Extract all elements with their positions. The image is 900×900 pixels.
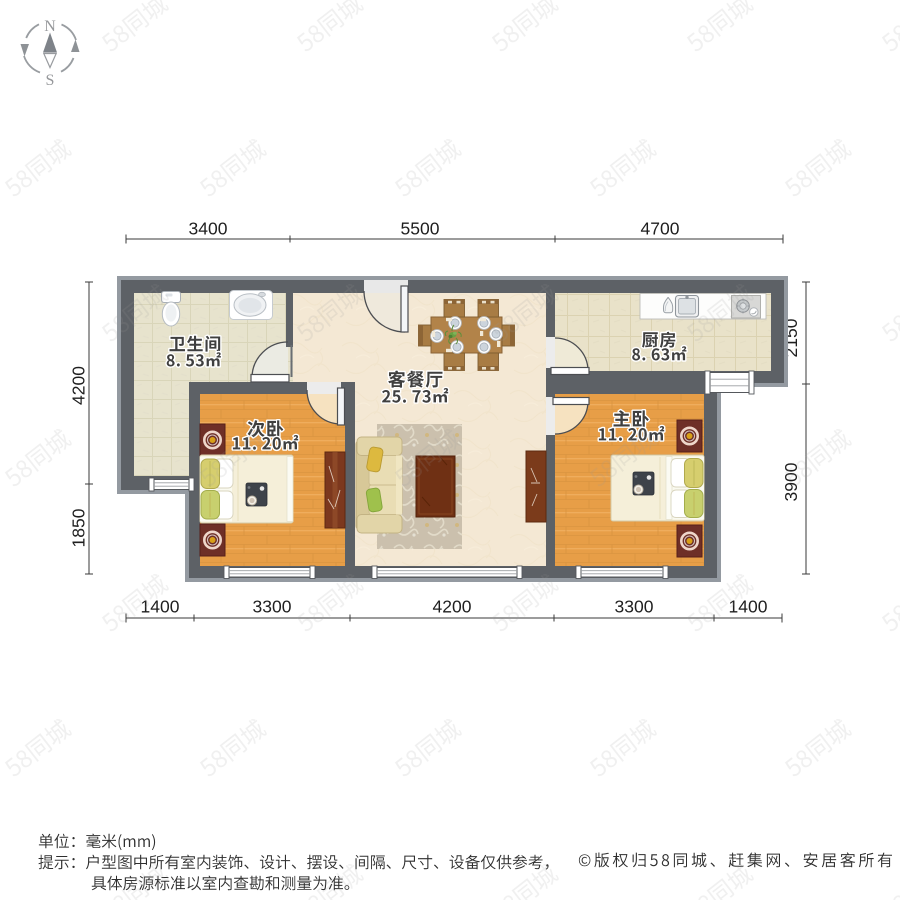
svg-text:3300: 3300 <box>615 597 654 617</box>
svg-text:3400: 3400 <box>189 219 228 239</box>
svg-text:S: S <box>46 72 55 89</box>
svg-text:4700: 4700 <box>641 219 680 239</box>
svg-text:1850: 1850 <box>69 508 89 547</box>
svg-text:4200: 4200 <box>69 366 89 405</box>
svg-text:5500: 5500 <box>401 219 440 239</box>
svg-text:4200: 4200 <box>433 597 472 617</box>
svg-text:N: N <box>44 18 56 35</box>
svg-text:3300: 3300 <box>253 597 292 617</box>
svg-text:1400: 1400 <box>729 597 768 617</box>
